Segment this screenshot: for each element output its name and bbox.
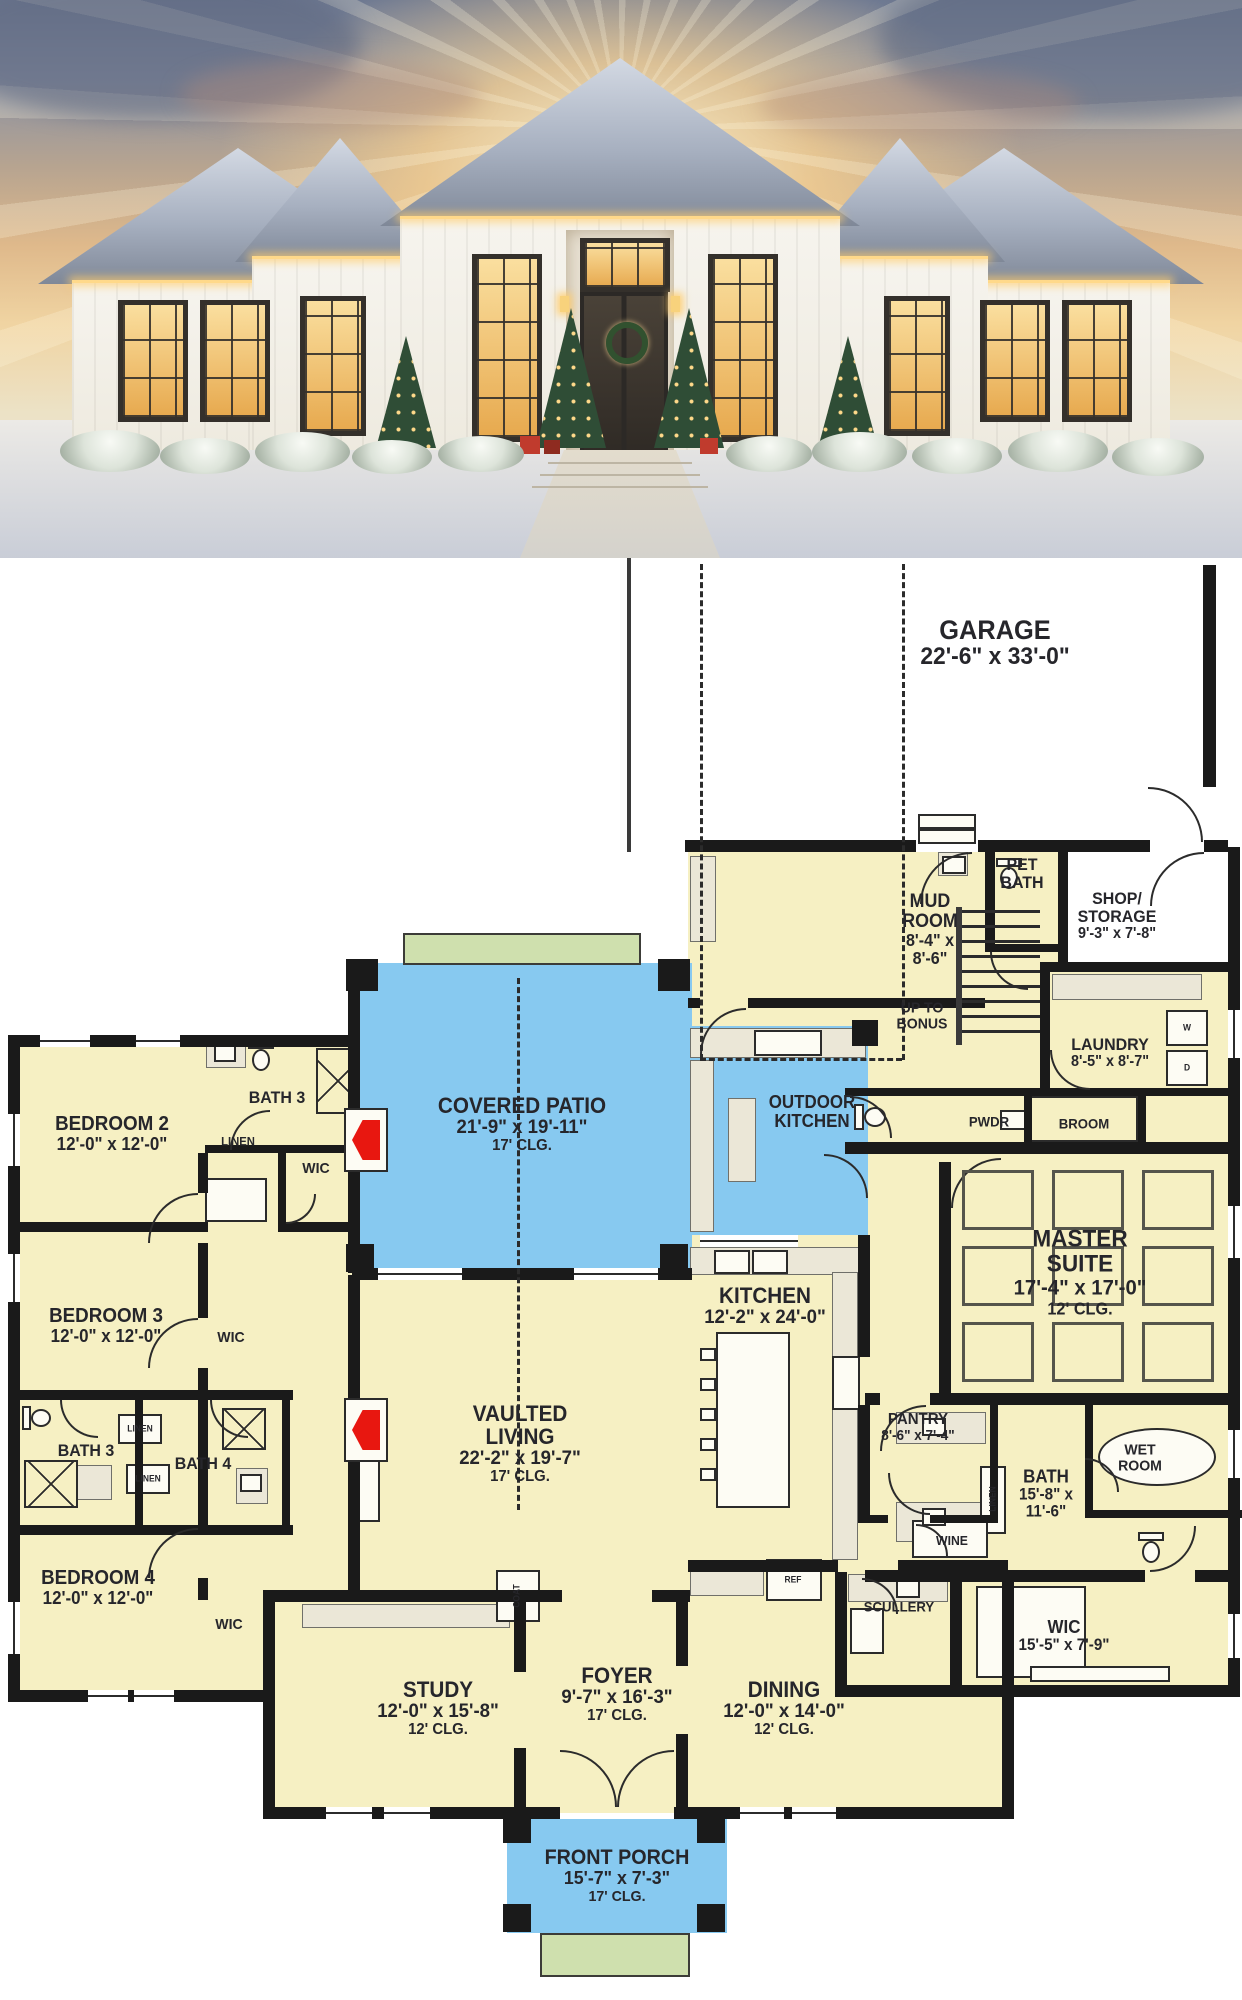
room-dimensions: 8'-6" x 7'-4": [881, 1429, 954, 1444]
gift-box: [544, 440, 560, 454]
room-name: UP TO: [897, 1000, 948, 1016]
wall: [858, 1515, 888, 1523]
room-dimensions: 15'-5" x 7'-9": [1018, 1637, 1109, 1654]
fixture-box: [205, 1178, 267, 1222]
window: [1228, 1430, 1240, 1478]
wall: [676, 1734, 688, 1814]
stair-tread: [962, 910, 1040, 913]
window: [574, 1268, 658, 1280]
ceiling-height: 17' CLG.: [545, 1889, 690, 1905]
room-label-laundry: LAUNDRY8'-5" x 8'-7": [1071, 1036, 1149, 1070]
window: [1228, 1614, 1240, 1658]
window-glow: [980, 300, 1050, 422]
room-dimensions: 15'-8" x: [1019, 1486, 1073, 1503]
dashed-line: [902, 564, 905, 1060]
stair-tread: [962, 940, 1040, 943]
wall: [514, 1748, 526, 1814]
room-label-pwdr: PWDR: [969, 1115, 1009, 1130]
window-glow: [1062, 300, 1132, 422]
room-name: LAUNDRY: [1071, 1036, 1149, 1054]
room-label-vaulted-living: VAULTEDLIVING22'-2" x 19'-7"17' CLG.: [459, 1402, 581, 1486]
wall: [835, 1572, 847, 1687]
counter: [302, 1604, 510, 1628]
room-label-garage: GARAGE22'-6" x 33'-0": [920, 616, 1069, 670]
room-label-wic-master: WIC15'-5" x 7'-9": [1018, 1618, 1109, 1654]
window: [136, 1035, 180, 1047]
room-name: STORAGE: [1078, 908, 1157, 926]
room-label-bath-4: BATH 4: [175, 1455, 232, 1473]
room-label-broom: BROOM: [1059, 1117, 1109, 1132]
stair-tread: [962, 925, 1040, 928]
counter: [690, 856, 716, 942]
dashed-line: [700, 1058, 902, 1061]
snowy-bush: [912, 438, 1002, 474]
window-glow: [118, 300, 188, 422]
eave-lights: [400, 216, 840, 219]
room-dimensions: 15'-7" x 7'-3": [545, 1869, 690, 1889]
room-name: SCULLERY: [864, 1600, 934, 1615]
room-dimensions: 12'-2" x 24'-0": [704, 1307, 826, 1328]
stair-tread: [962, 1030, 1040, 1033]
fixture-box: [918, 814, 976, 829]
fixture-box: [240, 1474, 262, 1492]
window-glow: [200, 300, 270, 422]
room-label-bedroom-3: BEDROOM 312'-0" x 12'-0": [49, 1306, 163, 1346]
wall: [503, 1815, 531, 1843]
wall: [697, 1815, 725, 1843]
fixture-box: [918, 829, 976, 844]
room-name: COVERED PATIO: [438, 1094, 606, 1117]
coffered-ceiling-square: [1052, 1170, 1124, 1230]
room-label-linen-upper: LINEN: [221, 1136, 255, 1149]
cloud: [180, 60, 480, 130]
wall: [845, 1142, 1240, 1154]
wall: [346, 959, 378, 991]
room-name: VAULTED: [459, 1402, 581, 1425]
wall: [985, 852, 995, 952]
wall: [198, 1578, 208, 1600]
window: [740, 1807, 784, 1819]
wall: [835, 1685, 952, 1697]
wall: [674, 1807, 1014, 1819]
bar-stool-icon: [700, 1378, 716, 1391]
room-dimensions: 17'-4" x 17'-0": [1014, 1277, 1147, 1300]
wall: [278, 1153, 286, 1230]
room-name: BATH: [1000, 874, 1043, 892]
stair-tread: [962, 985, 1040, 988]
ceiling-height: 12' CLG.: [723, 1722, 845, 1739]
wall: [930, 1393, 1240, 1405]
snowy-bush: [352, 440, 432, 474]
window: [700, 1235, 798, 1247]
wall: [660, 1244, 688, 1272]
room-name: LINEN: [221, 1136, 255, 1149]
room-dimensions: 8'-5" x 8'-7": [1071, 1054, 1149, 1070]
room-label-bedroom-4: BEDROOM 412'-0" x 12'-0": [41, 1568, 155, 1608]
room-label-scullery: SCULLERY: [864, 1600, 934, 1615]
wall: [198, 1153, 208, 1193]
room-label-foyer: FOYER9'-7" x 16'-3"17' CLG.: [561, 1664, 672, 1725]
room-label-coat: COAT: [512, 1584, 521, 1607]
snowy-bush: [160, 438, 250, 474]
stair-tread: [962, 1015, 1040, 1018]
room-name: FOYER: [561, 1664, 672, 1687]
window: [134, 1690, 174, 1702]
room-name: GARAGE: [920, 616, 1069, 644]
wall: [503, 1904, 531, 1932]
wall: [950, 1572, 962, 1687]
room-name: BEDROOM 4: [41, 1568, 155, 1589]
coffered-ceiling-square: [1052, 1322, 1124, 1382]
room-name: FRONT PORCH: [545, 1847, 690, 1869]
wall: [346, 1244, 374, 1272]
coffered-ceiling-square: [1142, 1322, 1214, 1382]
coffered-ceiling-square: [962, 1170, 1034, 1230]
plumbing-fixture: [31, 1409, 51, 1427]
room-name: LINEN: [988, 1486, 997, 1511]
coffered-ceiling-square: [1142, 1170, 1214, 1230]
ceiling-height: 17' CLG.: [459, 1469, 581, 1486]
wall: [1002, 1572, 1014, 1819]
counter: [1052, 974, 1202, 1000]
wall: [1024, 1096, 1032, 1142]
snowy-bush: [1008, 430, 1108, 472]
counter: [832, 1272, 858, 1560]
room-dimensions: 12'-0" x 14'-0": [723, 1701, 845, 1722]
plumbing-fixture: [252, 1049, 270, 1071]
room-dimensions: 12'-0" x 12'-0": [55, 1135, 169, 1154]
wall: [852, 1020, 878, 1046]
window: [1228, 1206, 1240, 1258]
wall: [865, 1393, 880, 1405]
wall: [8, 1390, 293, 1400]
room-label-linen-vert: LINEN: [988, 1486, 997, 1511]
wall: [685, 840, 916, 852]
wall: [950, 1685, 1240, 1697]
room-name: ROOM: [902, 912, 958, 932]
room-dimensions: 8'-6": [902, 950, 958, 968]
room-name: BEDROOM 2: [55, 1114, 169, 1135]
room-label-washer: W: [1183, 1023, 1191, 1032]
wall: [688, 998, 700, 1008]
room-name: WINE: [936, 1534, 968, 1548]
room-dimensions: 22'-6" x 33'-0": [920, 644, 1069, 670]
window: [1228, 1010, 1240, 1058]
room-name: BATH 3: [249, 1089, 306, 1107]
wall: [135, 1400, 143, 1525]
window-glow: [884, 296, 950, 436]
wall: [688, 1560, 838, 1572]
room-label-wet-room: WETROOM: [1118, 1442, 1162, 1474]
room-label-wic-bed4: WIC: [215, 1617, 242, 1633]
ceiling-height: 17' CLG.: [438, 1138, 606, 1155]
walkway-step: [540, 474, 700, 476]
window: [8, 1254, 20, 1302]
wall: [1040, 962, 1228, 972]
room-label-up-to-bonus: UP TOBONUS: [897, 1000, 948, 1032]
room-dimensions: 12'-0" x 12'-0": [41, 1589, 155, 1608]
room-dimensions: 9'-7" x 16'-3": [561, 1687, 672, 1708]
room-label-wic-bed3: WIC: [217, 1330, 244, 1346]
room-label-pantry: PANTRY8'-6" x 7'-4": [881, 1412, 954, 1444]
wall: [1204, 840, 1228, 852]
steps: [540, 1933, 690, 1977]
room-label-dryer: D: [1184, 1063, 1190, 1072]
window-glow: [708, 254, 778, 442]
fixture-box: [714, 1250, 750, 1274]
window: [40, 1035, 90, 1047]
stair-tread: [962, 955, 1040, 958]
window-glow: [472, 254, 542, 442]
snowy-bush: [60, 430, 160, 472]
snowy-bush: [255, 432, 350, 472]
window: [8, 1114, 20, 1166]
window-glow: [300, 296, 366, 436]
window: [88, 1690, 128, 1702]
wall: [263, 1602, 275, 1819]
room-name: PET: [1000, 856, 1043, 874]
room-label-wic-bed2: WIC: [302, 1161, 329, 1177]
counter: [690, 1060, 714, 1232]
walkway-step: [548, 462, 692, 464]
room-name: WIC: [217, 1330, 244, 1346]
house-photo: [0, 0, 1242, 558]
snowy-bush: [812, 432, 907, 472]
room-label-dining: DINING12'-0" x 14'-0"12' CLG.: [723, 1678, 845, 1739]
room-name: BATH 3: [58, 1442, 115, 1460]
coffered-ceiling-square: [962, 1322, 1034, 1382]
room-name: BROOM: [1059, 1117, 1109, 1132]
room-name: KITCHEN: [704, 1284, 826, 1307]
fixture-box: [22, 1406, 31, 1430]
wall: [676, 1602, 688, 1666]
room-dimensions: 12'-0" x 12'-0": [49, 1327, 163, 1346]
room-label-front-porch: FRONT PORCH15'-7" x 7'-3"17' CLG.: [545, 1847, 690, 1905]
room-label-bath-3-upper: BATH 3: [249, 1089, 306, 1107]
room-dimensions: 8'-4" x: [902, 932, 958, 950]
room-name: STUDY: [377, 1678, 499, 1701]
wall: [939, 1162, 951, 1394]
stair-tread: [962, 970, 1040, 973]
room-name: PANTRY: [881, 1412, 954, 1429]
room-name: LIVING: [459, 1425, 581, 1448]
thin-wall: [627, 558, 631, 852]
window: [378, 1268, 462, 1280]
wall: [858, 1235, 870, 1357]
room-name: WIC: [215, 1617, 242, 1633]
counter: [728, 1098, 756, 1182]
room-name: REF: [785, 1575, 802, 1584]
wall: [514, 1602, 526, 1672]
fixture-box: [752, 1250, 788, 1274]
room-label-linen-c: LINEN: [135, 1474, 160, 1483]
eave-lights: [252, 256, 422, 259]
room-dimensions: 12'-0" x 15'-8": [377, 1701, 499, 1722]
steps: [403, 933, 641, 965]
door-swing-icon: [1148, 787, 1203, 842]
wall: [1195, 1570, 1240, 1582]
wall: [8, 1525, 293, 1535]
screenshot: GARAGE22'-6" x 33'-0"MUDROOM8'-4" x8'-6"…: [0, 0, 1242, 2000]
room-label-wine: WINE: [936, 1534, 968, 1548]
fixture-box: [832, 1356, 860, 1410]
room-label-shop-storage: SHOP/STORAGE9'-3" x 7'-8": [1078, 890, 1157, 942]
room-name: BATH 4: [175, 1455, 232, 1473]
window: [792, 1807, 836, 1819]
room-name: MUD: [902, 892, 958, 912]
room-label-bath-3-lower: BATH 3: [58, 1442, 115, 1460]
wall: [858, 1405, 870, 1515]
room-name: SUITE: [1014, 1252, 1147, 1277]
dashed-line: [700, 564, 703, 1060]
window: [326, 1807, 372, 1819]
room-label-linen-b: LINEN: [127, 1424, 152, 1433]
ceiling-height: 17' CLG.: [561, 1708, 672, 1725]
bar-stool-icon: [700, 1348, 716, 1361]
room-name: BEDROOM 3: [49, 1306, 163, 1327]
porch-lantern: [560, 296, 569, 312]
wall: [1203, 565, 1216, 787]
room-dimensions: 9'-3" x 7'-8": [1078, 926, 1157, 942]
room-label-covered-patio: COVERED PATIO21'-9" x 19'-11"17' CLG.: [438, 1094, 606, 1155]
snowy-bush: [726, 436, 812, 472]
counter: [76, 1465, 112, 1500]
wall: [658, 959, 690, 991]
wall: [198, 1243, 208, 1318]
room-dimensions: 21'-9" x 19'-11": [438, 1117, 606, 1138]
porch-lantern: [671, 296, 680, 312]
room-label-master-suite: MASTERSUITE17'-4" x 17'-0"12' CLG.: [1014, 1226, 1147, 1317]
cloud: [760, 70, 1080, 140]
room-dimensions: 11'-6": [1019, 1503, 1073, 1520]
room-label-mud-room: MUDROOM8'-4" x8'-6": [902, 892, 958, 968]
gift-box: [700, 438, 718, 454]
wreath: [606, 322, 648, 364]
room-name: OUTDOOR: [769, 1093, 855, 1112]
bar-stool-icon: [700, 1408, 716, 1421]
room-name: WET: [1118, 1442, 1162, 1458]
room-name: COAT: [512, 1584, 521, 1607]
stair-tread: [962, 1000, 1040, 1003]
room-label-outdoor-kitchen: OUTDOORKITCHEN: [769, 1093, 855, 1131]
room-name: BONUS: [897, 1016, 948, 1032]
room-name: PWDR: [969, 1115, 1009, 1130]
wall: [697, 1904, 725, 1932]
fixture-box: [850, 1608, 884, 1654]
coffered-ceiling-square: [1142, 1246, 1214, 1306]
fixture-box: [1030, 1666, 1170, 1682]
room-name: KITCHEN: [769, 1112, 855, 1131]
room-label-study: STUDY12'-0" x 15'-8"12' CLG.: [377, 1678, 499, 1739]
wall: [282, 1400, 290, 1525]
wall: [748, 998, 985, 1008]
fixture-box: [754, 1030, 822, 1056]
ceiling-height: 12' CLG.: [1014, 1299, 1147, 1317]
wall: [845, 1088, 1240, 1096]
wall: [930, 1515, 998, 1523]
eave-lights: [818, 256, 988, 259]
bar-stool-icon: [700, 1468, 716, 1481]
wall: [1040, 972, 1050, 1090]
bar-stool-icon: [700, 1438, 716, 1451]
snowy-bush: [438, 436, 524, 472]
room-name: MASTER: [1014, 1226, 1147, 1251]
room-name: WIC: [1018, 1618, 1109, 1637]
wall: [520, 1590, 562, 1602]
room-name: LINEN: [127, 1424, 152, 1433]
room-label-pet-bath: PETBATH: [1000, 856, 1043, 892]
room-label-kitchen: KITCHEN12'-2" x 24'-0": [704, 1284, 826, 1328]
room-name: W: [1183, 1023, 1191, 1032]
wall: [1138, 1096, 1146, 1142]
wall: [985, 944, 1065, 952]
wall: [1085, 1510, 1242, 1518]
snowy-bush: [1112, 438, 1204, 476]
window: [384, 1807, 430, 1819]
wall: [865, 1570, 1145, 1582]
shower-icon: [24, 1460, 78, 1508]
room-name: BATH: [1019, 1468, 1073, 1487]
room-dimensions: 22'-2" x 19'-7": [459, 1448, 581, 1469]
ceiling-height: 12' CLG.: [377, 1722, 499, 1739]
room-name: WIC: [302, 1161, 329, 1177]
room-label-bedroom-2: BEDROOM 212'-0" x 12'-0": [55, 1114, 169, 1154]
walkway-step: [532, 486, 708, 488]
room-name: SHOP/: [1078, 890, 1157, 908]
transom-window: [580, 238, 670, 292]
wall: [978, 840, 1150, 852]
fixture-box: [716, 1332, 790, 1508]
room-label-master-bath: BATH15'-8" x11'-6": [1019, 1468, 1073, 1521]
room-name: ROOM: [1118, 1458, 1162, 1474]
room-name: D: [1184, 1063, 1190, 1072]
floor-plan: GARAGE22'-6" x 33'-0"MUDROOM8'-4" x8'-6"…: [0, 558, 1242, 2000]
room-name: DINING: [723, 1678, 845, 1701]
wall: [652, 1590, 690, 1602]
window: [8, 1602, 20, 1654]
room-label-ref: REF: [785, 1575, 802, 1584]
room-name: LINEN: [135, 1474, 160, 1483]
